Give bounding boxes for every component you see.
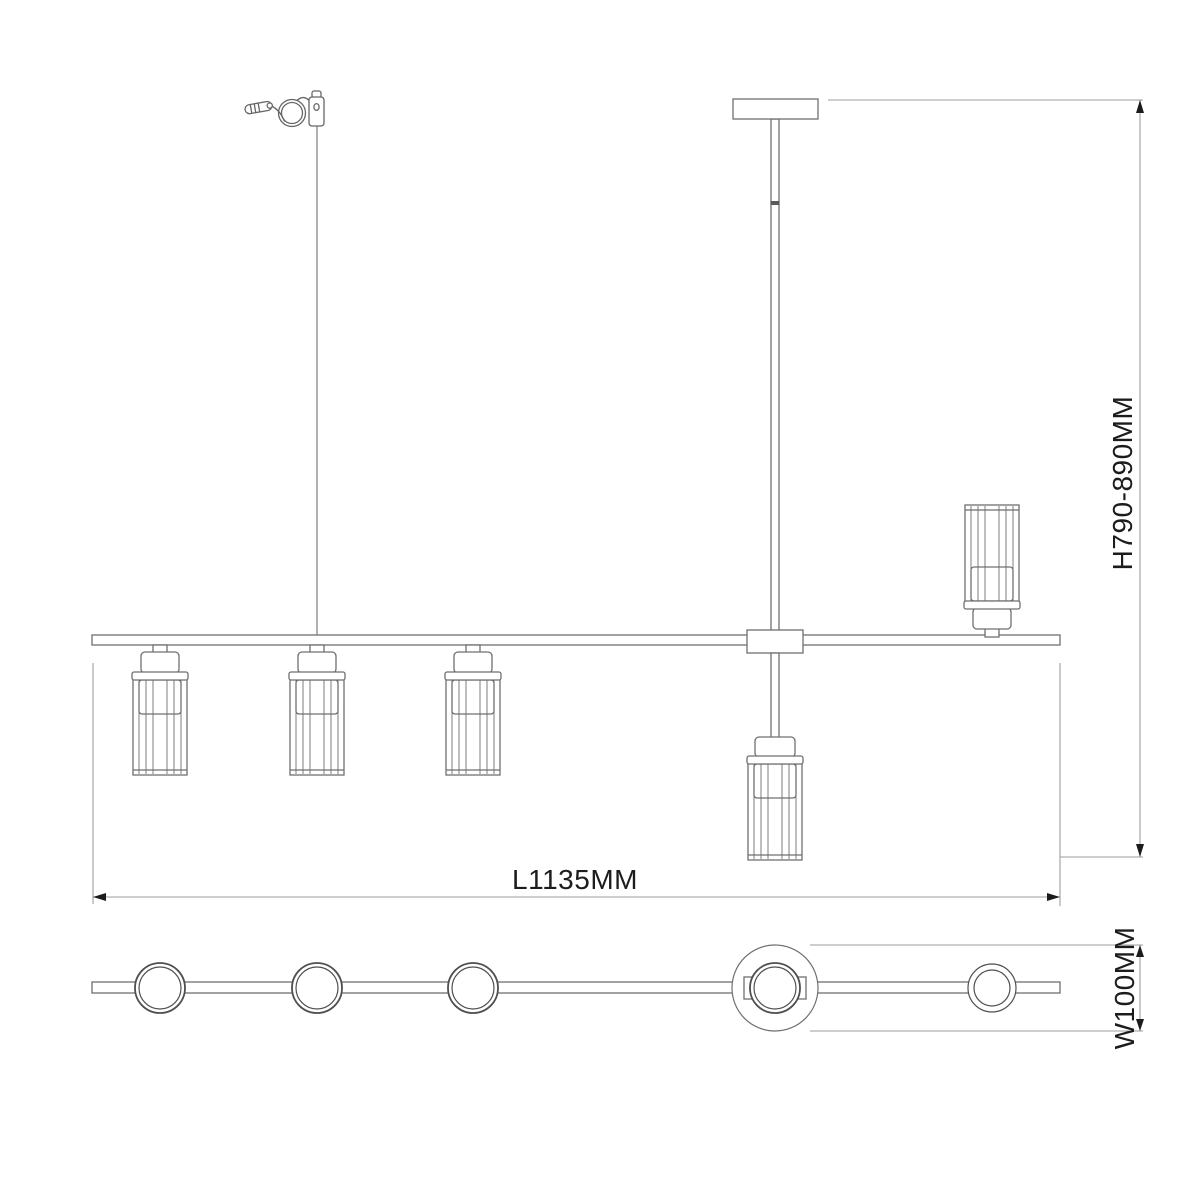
plan-lamp-circle-5 xyxy=(968,964,1016,1012)
height-arrow-up xyxy=(1136,100,1144,113)
plan-center-lamp-outer xyxy=(750,963,800,1013)
pendant-lamp-2 xyxy=(289,645,345,775)
upward-lamp xyxy=(964,505,1020,637)
plan-lamp-circle-1 xyxy=(135,963,185,1013)
lamp-cap-ring xyxy=(132,672,188,680)
horizontal-bar xyxy=(92,635,1060,645)
lamp-shade-body xyxy=(133,679,187,775)
lamp-socket xyxy=(755,737,795,757)
dimension-height xyxy=(828,100,1144,857)
suspension-rod-lower xyxy=(771,653,779,738)
cable-gripper xyxy=(244,91,324,127)
ceiling-canopy xyxy=(733,99,818,119)
height-arrow-down xyxy=(1136,844,1144,857)
lamp-cap-ring xyxy=(747,756,803,764)
plan-lamp-circle-3 xyxy=(448,963,498,1013)
length-label: L1135MM xyxy=(512,864,638,895)
center-connector-block xyxy=(747,630,803,653)
gripper-body xyxy=(309,97,324,126)
drawing-canvas: L1135MM H790-890MM W100MM xyxy=(0,0,1200,1200)
cable-curve-right xyxy=(297,98,310,101)
pendant-lamp-1 xyxy=(132,645,188,775)
lamp-socket xyxy=(973,608,1011,629)
lamp-cap-ring xyxy=(964,601,1020,609)
height-label: H790-890MM xyxy=(1107,396,1138,571)
center-pendant-lamp xyxy=(747,737,803,860)
plan-bar xyxy=(92,982,1060,993)
plan-canopy-and-center-lamp xyxy=(732,945,818,1031)
length-arrow-right xyxy=(1047,893,1060,901)
gripper-hole xyxy=(314,104,319,111)
bottom-plan-view xyxy=(92,945,1060,1031)
cable-loop xyxy=(279,100,306,127)
plan-lamp-circle-2 xyxy=(292,963,342,1013)
lamp-socket xyxy=(141,652,179,673)
technical-drawing: L1135MM H790-890MM W100MM xyxy=(0,0,1200,1200)
lamp-shade-body xyxy=(748,763,802,860)
ceiling-hook-icon xyxy=(244,101,273,115)
front-elevation-view xyxy=(92,91,1060,860)
suspension-rod-upper xyxy=(771,119,779,631)
lamp-shade-body xyxy=(965,505,1019,602)
rod-joint xyxy=(771,201,780,205)
width-label: W100MM xyxy=(1109,927,1140,1050)
length-arrow-left xyxy=(93,893,106,901)
pendant-lamp-3 xyxy=(445,645,501,775)
